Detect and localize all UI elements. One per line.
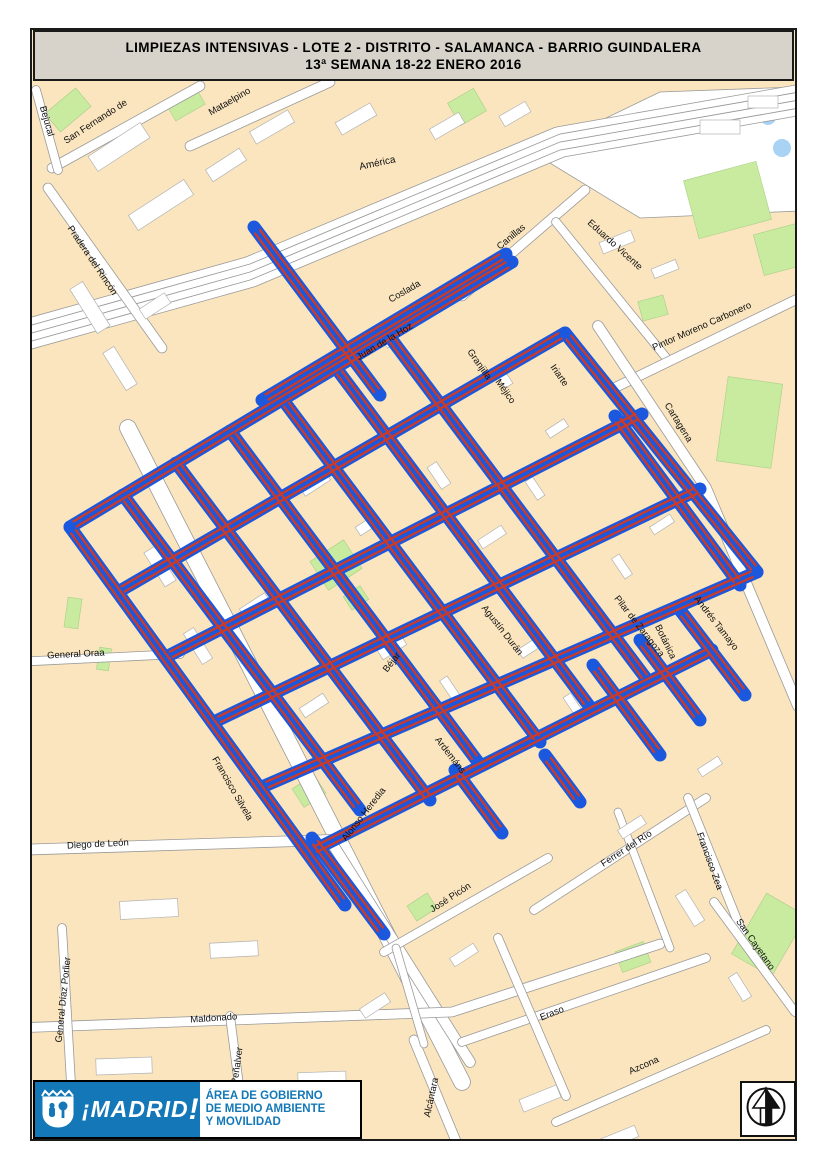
department-line-2: DE MEDIO AMBIENTE xyxy=(206,1103,354,1116)
pond xyxy=(773,139,791,157)
madrid-wordmark-text: ¡MADRID xyxy=(82,1096,189,1123)
madrid-logo-plate: ¡MADRID! ÁREA DE GOBIERNO DE MEDIO AMBIE… xyxy=(33,1080,362,1139)
title-line-1: LIMPIEZAS INTENSIVAS - LOTE 2 - DISTRITO… xyxy=(125,40,701,55)
north-arrow xyxy=(740,1081,796,1137)
building xyxy=(748,96,778,108)
building xyxy=(210,941,259,958)
park-area xyxy=(716,377,782,469)
department-line-1: ÁREA DE GOBIERNO xyxy=(206,1090,354,1103)
madrid-crest-icon xyxy=(35,1082,82,1137)
madrid-wordmark: ¡MADRID! xyxy=(82,1082,200,1137)
building xyxy=(700,120,740,134)
title-line-2: 13ª SEMANA 18-22 ENERO 2016 xyxy=(305,57,521,72)
city-map: AméricaSan Fernando deMataelpinoBejucalP… xyxy=(0,0,827,1170)
page: AméricaSan Fernando deMataelpinoBejucalP… xyxy=(0,0,827,1170)
building xyxy=(96,1057,153,1075)
building xyxy=(120,898,179,919)
park-area xyxy=(795,295,821,360)
department-panel: ÁREA DE GOBIERNO DE MEDIO AMBIENTE Y MOV… xyxy=(200,1082,360,1137)
title-banner: LIMPIEZAS INTENSIVAS - LOTE 2 - DISTRITO… xyxy=(33,30,794,81)
madrid-wordmark-bang: ! xyxy=(189,1100,200,1120)
department-line-3: Y MOVILIDAD xyxy=(206,1116,354,1129)
